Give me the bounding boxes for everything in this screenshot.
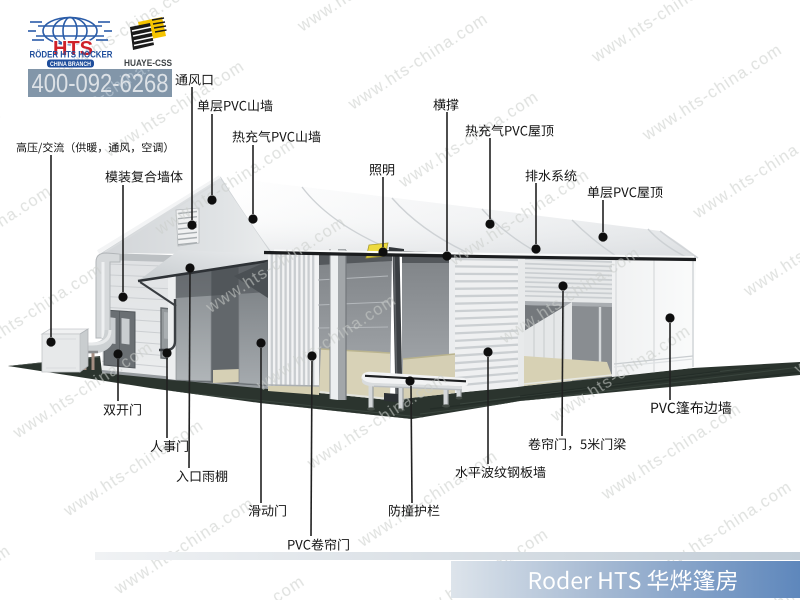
svg-text:RÖDER HTS HÖCKER: RÖDER HTS HÖCKER	[30, 50, 113, 61]
svg-text:400-092-6268: 400-092-6268	[32, 68, 169, 98]
svg-text:CHINA BRANCH: CHINA BRANCH	[50, 62, 91, 68]
